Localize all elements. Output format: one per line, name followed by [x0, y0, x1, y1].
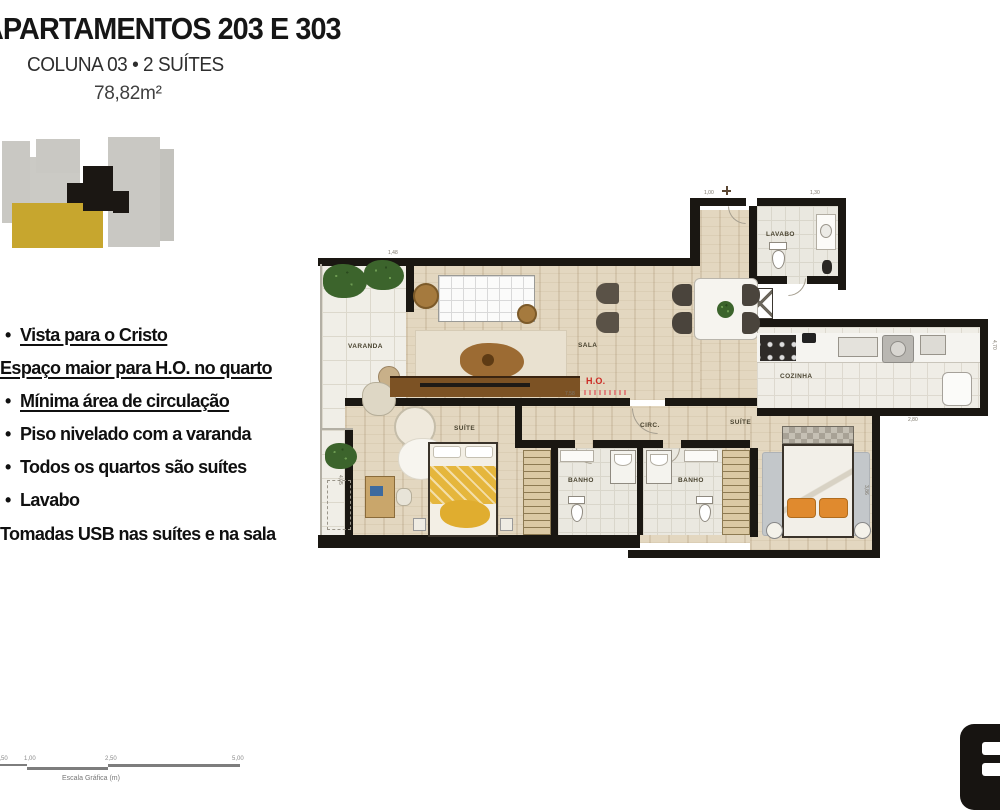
- armchair: [596, 283, 619, 304]
- dimension-label: 1,30: [810, 191, 820, 196]
- home-office-hatch: [584, 390, 626, 395]
- dining-chair: [742, 312, 760, 334]
- vanity-sink: [684, 450, 718, 462]
- coffee-maker: [802, 333, 816, 343]
- keyplan-floor-block: [36, 139, 80, 173]
- scale-segment: [27, 767, 108, 770]
- scale-segment: [0, 764, 27, 766]
- wall: [665, 398, 757, 406]
- bed-suite2: [782, 444, 854, 538]
- armchair: [596, 312, 619, 333]
- wall: [750, 448, 758, 537]
- vanity-sink: [560, 450, 594, 462]
- room-label-banho2: BANHO: [678, 478, 704, 485]
- blanket: [430, 466, 496, 504]
- room-label-cozinha: COZINHA: [780, 374, 812, 381]
- nightstand: [500, 518, 513, 531]
- wall: [872, 408, 880, 558]
- dimension-label: 4,70: [991, 340, 996, 350]
- wall: [593, 440, 663, 448]
- dimension-label: 7,58: [565, 392, 575, 397]
- scale-segment: [108, 764, 240, 767]
- pillow: [433, 446, 461, 458]
- desk: [365, 476, 395, 518]
- wall: [807, 276, 846, 284]
- floorplan-flyer-page: { "header": { "title": "APARTAMENTOS 203…: [0, 0, 1000, 800]
- sink-basin: [820, 224, 832, 238]
- page-title: APARTAMENTOS 203 E 303: [0, 12, 341, 46]
- wall: [551, 448, 558, 535]
- feature-item: Piso nivelado com a varanda: [0, 421, 276, 447]
- scale-bar: 0,50 1,00 2,50 5,00 Escala Gráfica (m): [0, 748, 270, 793]
- plant-icon: [364, 260, 404, 290]
- scale-tick: 0,50: [0, 756, 8, 762]
- keyplan-floor-block: [160, 149, 174, 241]
- table-plant-icon: [717, 301, 734, 318]
- pillow-orange: [819, 498, 848, 518]
- dimension-label: 4,05: [337, 475, 342, 485]
- building-key-plan: [0, 133, 180, 268]
- wall: [757, 198, 846, 206]
- washer-door: [890, 341, 906, 357]
- scale-tick: 2,50: [105, 756, 117, 762]
- feature-item: Vista para o Cristo: [0, 322, 276, 348]
- fridge-icon: [942, 372, 972, 406]
- wall: [741, 319, 988, 327]
- plant-icon: [323, 264, 367, 298]
- page-subtitle: COLUNA 03 • 2 SUÍTES: [27, 54, 224, 77]
- keyplan-core-block: [83, 166, 113, 211]
- wardrobe: [722, 450, 750, 535]
- scale-tick: 1,00: [24, 756, 36, 762]
- room-label-banho1: BANHO: [568, 478, 594, 485]
- feature-item: Todos os quartos são suítes: [0, 454, 276, 480]
- shower-bench: [614, 454, 632, 466]
- floor-plan: H.O. VARA: [310, 180, 1000, 580]
- room-label-circ: CIRC.: [640, 423, 660, 430]
- kitchen-sink: [838, 337, 878, 357]
- dining-chair: [672, 312, 692, 334]
- wall: [406, 266, 414, 312]
- side-table: [517, 304, 537, 324]
- wall: [980, 319, 988, 416]
- desk-chair: [396, 488, 412, 506]
- toilet-icon: [568, 496, 585, 504]
- unit-area: 78,82m²: [94, 83, 162, 105]
- feature-item: Lavabo: [0, 487, 276, 513]
- varanda-rail: [320, 264, 322, 543]
- tv: [420, 383, 530, 387]
- entry-marker-icon: [722, 186, 731, 195]
- nightstand: [413, 518, 426, 531]
- dining-chair: [672, 284, 692, 306]
- wall: [757, 276, 787, 284]
- feature-list: Vista para o Cristo Espaço maior para H.…: [0, 322, 276, 554]
- wall: [628, 550, 880, 558]
- scale-tick: 5,00: [232, 756, 244, 762]
- room-label-varanda: VARANDA: [348, 344, 383, 351]
- laptop-icon: [370, 486, 383, 496]
- wall: [681, 440, 750, 448]
- brand-logo: [960, 724, 1000, 810]
- dining-chair: [742, 284, 760, 306]
- wall: [637, 448, 643, 535]
- wall: [515, 440, 575, 448]
- dimension-label: 2,80: [908, 418, 918, 423]
- dimension-label: 1,00: [704, 191, 714, 196]
- planter-box: [327, 480, 351, 530]
- room-label-sala: SALA: [578, 343, 597, 350]
- room-label-suite1: SUÍTE: [454, 426, 475, 433]
- wall: [872, 408, 988, 416]
- side-table: [413, 283, 439, 309]
- logo-slot: [982, 763, 1000, 776]
- door-arc: [788, 278, 806, 296]
- wall: [515, 406, 522, 440]
- wall: [757, 408, 880, 416]
- keyplan-core-block: [67, 183, 83, 203]
- room-label-suite2: SUÍTE: [730, 420, 751, 427]
- scale-caption: Escala Gráfica (m): [62, 775, 120, 782]
- feature-item: Mínima área de circulação: [0, 388, 276, 414]
- wall: [690, 205, 700, 266]
- wardrobe: [523, 450, 551, 535]
- toilet-icon: [696, 496, 713, 504]
- wall: [690, 198, 746, 206]
- feature-item: Espaço maior para H.O. no quarto: [0, 355, 276, 381]
- logo-slot: [982, 742, 1000, 755]
- shower-bench: [650, 454, 668, 466]
- toilet-icon: [769, 242, 787, 250]
- stove-icon: [760, 335, 796, 361]
- nightstand: [766, 522, 783, 539]
- nightstand: [854, 522, 871, 539]
- headboard: [782, 426, 854, 444]
- blanket-fold: [440, 500, 490, 528]
- coffee-table-decor: [482, 354, 494, 366]
- plant-icon: [325, 443, 357, 469]
- bath-decor: [822, 260, 832, 274]
- pillow-orange: [787, 498, 816, 518]
- keyplan-core-block: [113, 191, 129, 213]
- laundry-tank: [920, 335, 946, 355]
- feature-item: Tomadas USB nas suítes e na sala: [0, 521, 276, 547]
- room-label-lavabo: LAVABO: [766, 232, 795, 239]
- pillow: [465, 446, 493, 458]
- home-office-label: H.O.: [586, 376, 605, 386]
- dimension-label: 1,48: [388, 251, 398, 256]
- dimension-label: 3,86: [863, 485, 868, 495]
